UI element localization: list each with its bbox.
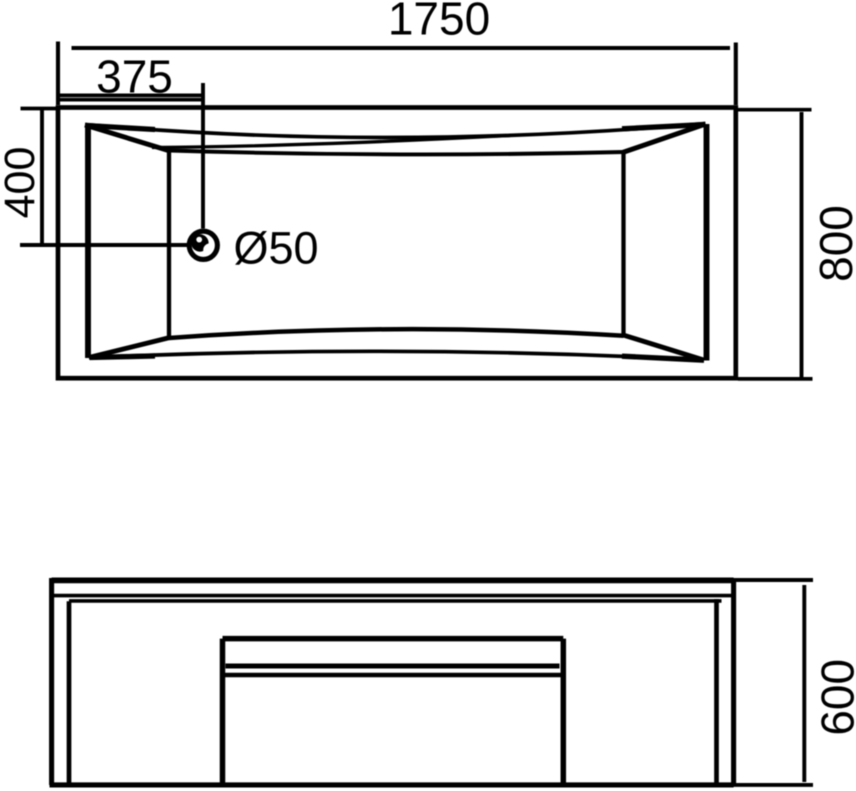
svg-text:1750: 1750 <box>388 0 490 45</box>
svg-text:600: 600 <box>812 659 856 736</box>
svg-text:400: 400 <box>0 147 44 219</box>
svg-text:800: 800 <box>810 205 856 282</box>
svg-text:Ø50: Ø50 <box>234 223 319 274</box>
